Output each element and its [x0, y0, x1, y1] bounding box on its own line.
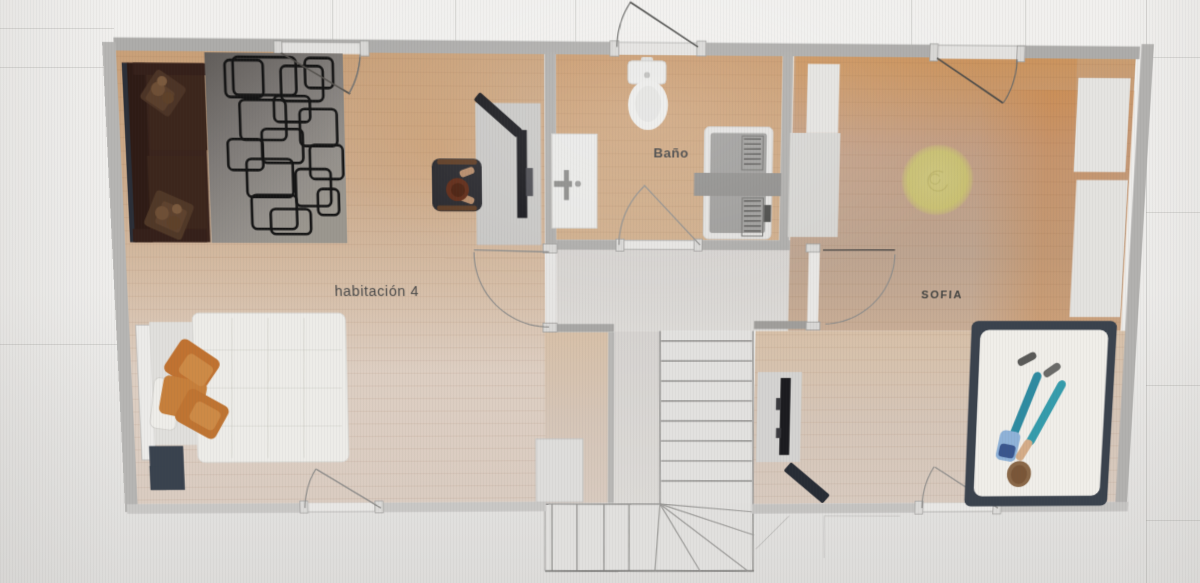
svg-text:Baño: Baño	[653, 146, 688, 162]
svg-text:SOFIA: SOFIA	[921, 288, 963, 301]
svg-text:habitación 4: habitación 4	[334, 284, 419, 300]
